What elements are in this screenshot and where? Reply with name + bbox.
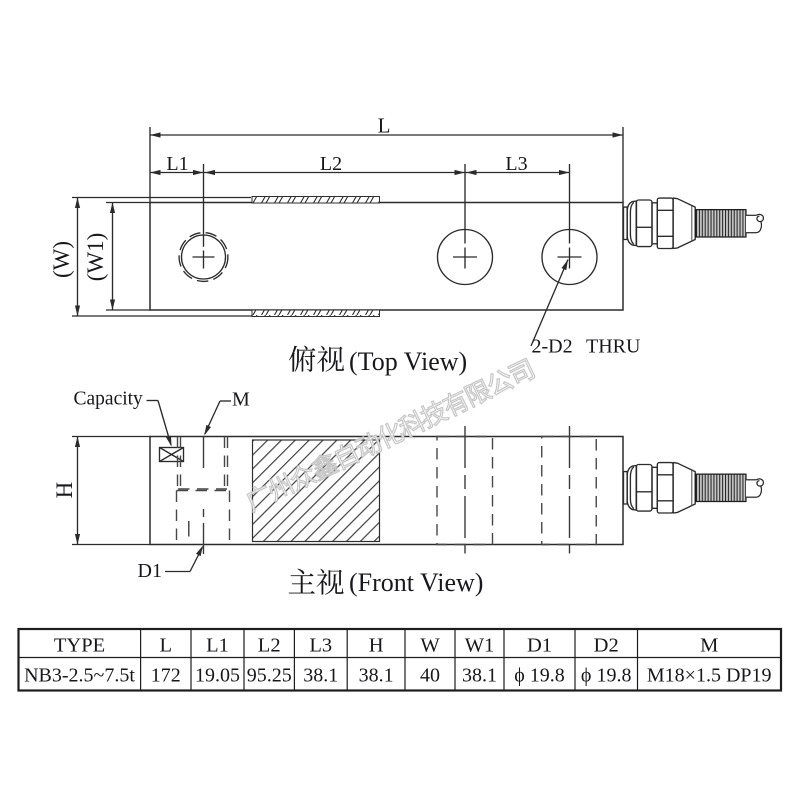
- svg-text:ϕ 19.8: ϕ 19.8: [581, 665, 632, 687]
- svg-text:(Top View): (Top View): [349, 347, 467, 376]
- svg-text:NB3-2.5~7.5t: NB3-2.5~7.5t: [24, 665, 135, 687]
- svg-text:(W1): (W1): [83, 233, 108, 282]
- svg-text:40: 40: [420, 665, 440, 687]
- svg-text:H: H: [52, 482, 77, 499]
- svg-text:38.1: 38.1: [359, 665, 394, 687]
- svg-text:W: W: [420, 635, 440, 657]
- svg-text:38.1: 38.1: [303, 665, 338, 687]
- svg-text:19.05: 19.05: [195, 665, 240, 687]
- svg-text:L3: L3: [505, 153, 527, 175]
- svg-text:TYPE: TYPE: [54, 635, 105, 657]
- svg-text:W1: W1: [465, 635, 495, 657]
- svg-text:L3: L3: [309, 635, 332, 657]
- svg-text:M: M: [700, 635, 718, 657]
- svg-text:L: L: [378, 114, 391, 138]
- svg-text:D1: D1: [138, 560, 162, 582]
- svg-text:L2: L2: [320, 153, 342, 175]
- svg-text:L1: L1: [206, 635, 229, 657]
- svg-text:95.25: 95.25: [247, 665, 292, 687]
- svg-text:L2: L2: [258, 635, 281, 657]
- svg-text:L1: L1: [166, 153, 188, 175]
- svg-text:D2: D2: [594, 635, 619, 657]
- svg-text:M18×1.5 DP19: M18×1.5 DP19: [647, 665, 772, 687]
- svg-text:38.1: 38.1: [462, 665, 497, 687]
- svg-text:H: H: [369, 635, 384, 657]
- svg-text:M: M: [232, 389, 250, 411]
- svg-text:ϕ 19.8: ϕ 19.8: [514, 665, 565, 687]
- svg-text:THRU: THRU: [586, 336, 641, 358]
- svg-text:D1: D1: [527, 635, 552, 657]
- svg-text:L: L: [160, 635, 173, 657]
- svg-text:2-D2: 2-D2: [532, 336, 573, 358]
- svg-text:(W): (W): [49, 241, 74, 278]
- svg-text:Capacity: Capacity: [74, 389, 144, 410]
- svg-text:172: 172: [151, 665, 181, 687]
- svg-text:(Front View): (Front View): [349, 568, 483, 597]
